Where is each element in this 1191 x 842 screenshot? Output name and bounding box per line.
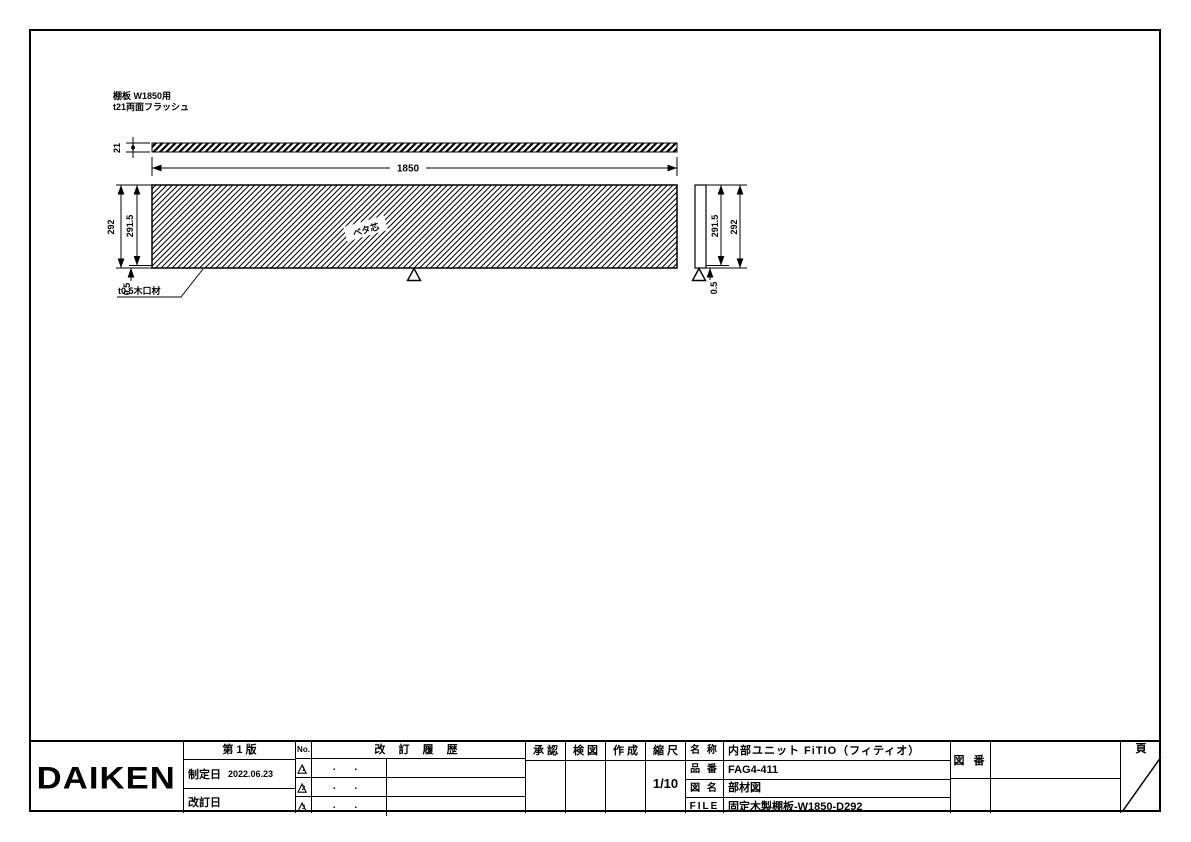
part-label: 品 番 [686, 761, 723, 780]
file-label: FILE [686, 798, 723, 816]
finish-mark-bottom [408, 269, 421, 281]
scale-value: 1/10 [646, 776, 685, 791]
board-face-view [152, 185, 677, 268]
revision-mark-row: △ 1 [296, 759, 311, 778]
revision-triangle-2: △ 2 [298, 781, 310, 794]
name-value-column: 内部ユニット FiTIO（フィティオ） FAG4-411 部材図 固定木製棚板-… [723, 742, 950, 813]
note-construction: t21両面フラッシュ [113, 102, 189, 112]
dim-right-outer: 292 [729, 219, 739, 234]
revised-row: 改訂日 [184, 789, 295, 814]
product-name: 内部ユニット FiTIO（フィティオ） [724, 742, 950, 761]
dim-right-edge: 0.5 [709, 282, 719, 295]
drawing-number-label: 図 番 [951, 742, 990, 779]
name-label: 名 称 [686, 742, 723, 761]
approval-column: 承 認 [525, 742, 565, 813]
edition-label: 第 1 版 [184, 742, 295, 760]
revision-date: . . [312, 778, 386, 796]
title-block: DAIKEN 第 1 版 制定日 2022.06.23 改訂日 No. △ 1 [29, 740, 1161, 811]
page-diagonal-cell [1121, 756, 1161, 813]
dim-thickness: 21 [112, 143, 122, 153]
revision-description [386, 778, 525, 796]
dwgname-label: 図 名 [686, 780, 723, 798]
revision-row: . . [312, 759, 525, 778]
note-board-type: 棚板 W1850用 [113, 90, 171, 101]
revision-mark-row: △ 2 [296, 778, 311, 797]
part-number: FAG4-411 [724, 761, 950, 780]
enacted-date: 2022.06.23 [228, 769, 273, 779]
revision-mark-row: △ 3 [296, 797, 311, 816]
drawing-number-label-empty [951, 779, 990, 814]
revision-date: . . [312, 797, 386, 816]
edge-band-note: t0.5木口材 [118, 285, 161, 296]
approval-header: 承 認 [526, 742, 565, 761]
drawing-name: 部材図 [724, 780, 950, 798]
revision-history-column: 改 訂 履 歴 . . . . . . [311, 742, 525, 813]
revision-date: . . [312, 759, 386, 777]
revision-no-column: No. △ 1 △ 2 △ 3 [295, 742, 311, 813]
dim-right-inner: 291.5 [710, 215, 720, 238]
page-column: 頁 [1120, 742, 1161, 813]
page-label: 頁 [1121, 742, 1161, 756]
revision-row: . . [312, 797, 525, 816]
check-header: 検 図 [566, 742, 605, 761]
create-header: 作 成 [606, 742, 645, 761]
drawing-number-label-column: 図 番 [950, 742, 990, 813]
left-width-dimensions: 292 291.5 0.5 [106, 185, 152, 295]
scale-column: 縮 尺 1/10 [645, 742, 685, 813]
drawing-number-value [991, 742, 1120, 779]
scale-header: 縮 尺 [646, 742, 685, 761]
no-header: No. [296, 742, 311, 759]
dim-length: 1850 [397, 164, 420, 175]
company-logo: DAIKEN [29, 742, 183, 813]
revision-description [386, 797, 525, 816]
revision-description [386, 759, 525, 777]
board-side-view [152, 143, 677, 152]
revision-triangle-3: △ 3 [298, 800, 310, 813]
board-end-view [695, 185, 706, 268]
enacted-label: 制定日 [188, 766, 221, 782]
thickness-dimension: 21 [112, 137, 150, 158]
revised-label: 改訂日 [188, 794, 221, 810]
revision-history-header: 改 訂 履 歴 [312, 742, 525, 759]
dim-left-inner: 291.5 [125, 215, 135, 238]
diagonal-slash [1121, 756, 1162, 813]
right-width-dimensions: 291.5 292 0.5 [706, 185, 747, 294]
enacted-row: 制定日 2022.06.23 [184, 760, 295, 789]
revision-row: . . [312, 778, 525, 797]
drawing-sheet: 棚板 W1850用 t21両面フラッシュ 21 1850 ベタ芯 [0, 0, 1191, 842]
company-logo-text: DAIKEN [36, 759, 175, 795]
board-drawing: 棚板 W1850用 t21両面フラッシュ 21 1850 ベタ芯 [0, 0, 1191, 842]
edition-block: 第 1 版 制定日 2022.06.23 改訂日 [183, 742, 295, 813]
create-column: 作 成 [605, 742, 645, 813]
check-column: 検 図 [565, 742, 605, 813]
drawing-number-value-column [990, 742, 1120, 813]
finish-mark-right [693, 269, 706, 281]
revision-triangle-1: △ 1 [298, 762, 310, 775]
length-dimension: 1850 [152, 157, 677, 176]
file-name: 固定木製棚板-W1850-D292 [724, 798, 950, 816]
dim-left-outer: 292 [106, 219, 116, 234]
name-label-column: 名 称 品 番 図 名 FILE [685, 742, 723, 813]
drawing-number-value-empty [991, 779, 1120, 814]
